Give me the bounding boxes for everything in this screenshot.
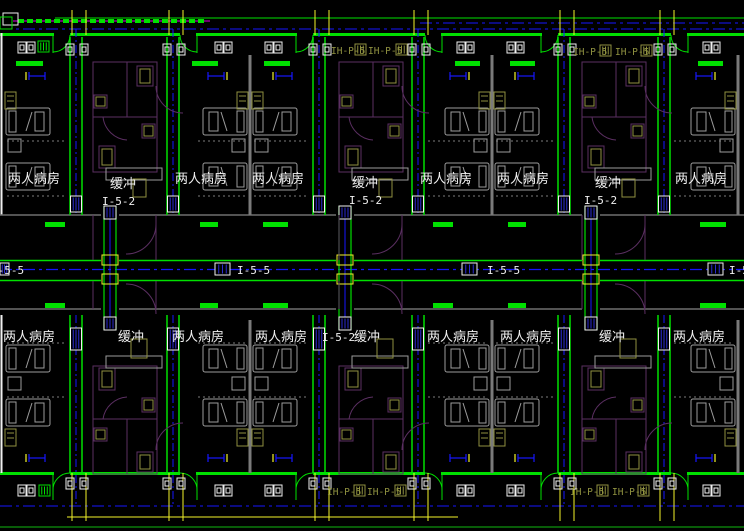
bed-blanket xyxy=(282,112,291,131)
ward-rooms xyxy=(5,72,736,462)
hatched-bar-seg xyxy=(72,19,78,23)
hatched-bar-seg xyxy=(108,19,114,23)
door-frame-inner xyxy=(165,481,169,486)
door-frame-box xyxy=(27,42,35,53)
door-frame-box xyxy=(457,42,465,53)
bed-fold xyxy=(709,349,715,368)
door-frame-inner xyxy=(217,488,221,493)
door-frame-inner xyxy=(509,45,513,50)
door-frame-inner xyxy=(459,45,463,50)
cistern xyxy=(140,69,150,83)
nightstand xyxy=(232,377,245,390)
room-label: I-5-2 xyxy=(584,194,617,207)
sink xyxy=(633,400,642,410)
bed-blanket xyxy=(697,403,706,422)
door-frame-inner xyxy=(518,488,522,493)
hatched-bar-seg xyxy=(27,19,33,23)
door-frame-inner xyxy=(714,488,718,493)
bed-fold xyxy=(26,403,32,422)
door-frame-box xyxy=(712,485,720,496)
room-label: I-5-2 xyxy=(349,194,382,207)
door-frame-inner xyxy=(509,488,513,493)
nightstand xyxy=(720,139,733,152)
door-frame-box xyxy=(18,42,26,53)
door-arc xyxy=(541,473,558,491)
duct-label: IH-P-5 xyxy=(331,46,365,57)
nightstand xyxy=(474,377,487,390)
axis-label: 缓冲 xyxy=(599,330,625,345)
door-frame-inner xyxy=(468,488,472,493)
door-frame-inner xyxy=(267,488,271,493)
bathroom-outline xyxy=(339,366,403,474)
bed-blanket xyxy=(451,112,460,131)
nightstand xyxy=(474,139,487,152)
door-frame-box xyxy=(554,478,562,489)
hatched-bar-seg xyxy=(45,19,51,23)
door-arc xyxy=(349,117,373,140)
door-frame-inner xyxy=(570,481,574,486)
door-lintel xyxy=(433,222,453,227)
axis-label: 缓冲 xyxy=(354,330,380,345)
bed-fold xyxy=(221,349,227,368)
toilet xyxy=(102,371,112,387)
room-label: I-5-5 xyxy=(0,264,24,277)
door-frame-box xyxy=(516,485,524,496)
door-lintel xyxy=(263,303,288,308)
room-label: 两人病房 xyxy=(255,329,307,345)
sink xyxy=(390,400,399,410)
room-label: 两人病房 xyxy=(427,329,479,345)
door-arc xyxy=(103,397,127,419)
bed-fold xyxy=(515,349,521,368)
door-arc xyxy=(372,224,402,254)
sink xyxy=(96,430,105,439)
desk-chair xyxy=(622,179,635,197)
door-frame-inner xyxy=(311,481,315,486)
door-frame-box xyxy=(516,42,524,53)
hatched-bar-seg xyxy=(117,19,123,23)
door-frame-box xyxy=(215,42,223,53)
duct-label: IH-P-5 xyxy=(615,47,649,58)
door-frame-inner xyxy=(267,45,271,50)
bed-fold xyxy=(515,403,521,422)
door-lintel xyxy=(200,303,218,308)
door-frame-inner xyxy=(424,481,428,486)
door-frame-box xyxy=(507,485,515,496)
axis-label: 缓冲 xyxy=(118,330,144,345)
door-frame-box xyxy=(466,485,474,496)
sink xyxy=(144,400,153,410)
toilet xyxy=(591,149,601,165)
hatched-bar-seg xyxy=(99,19,105,23)
hatched-bar-seg xyxy=(63,19,69,23)
door-lintel xyxy=(45,222,65,227)
door-frame-inner xyxy=(410,481,414,486)
hatched-bar-seg xyxy=(189,19,195,23)
axis-label: 缓冲 xyxy=(595,176,621,191)
floor-plan-drawing: 两人病房两人病房两人病房两人病房两人病房两人病房缓冲缓冲缓冲I-5-2I-5-2… xyxy=(0,0,744,531)
room-label: I-5-2 xyxy=(322,331,355,344)
bed-blanket xyxy=(282,403,291,422)
bed-fold xyxy=(273,403,279,422)
axis-label: 缓冲 xyxy=(352,176,378,191)
door-frame-box xyxy=(466,42,474,53)
door-frame-inner xyxy=(325,481,329,486)
bed-fold xyxy=(221,112,227,131)
bed-pillow xyxy=(479,166,486,187)
door-frame-box xyxy=(712,42,720,53)
room-label: 两人病房 xyxy=(420,171,472,187)
duct-label: IH-P-5 xyxy=(367,487,401,498)
door-frame-box xyxy=(80,44,88,55)
corridor xyxy=(0,261,744,281)
door-arc xyxy=(592,117,616,140)
bed-blanket xyxy=(524,349,533,368)
bed-pillow xyxy=(9,111,16,132)
hatched-bar-seg xyxy=(171,19,177,23)
bed-fold xyxy=(515,112,521,131)
bed-blanket xyxy=(35,349,44,368)
bed-blanket xyxy=(697,112,706,131)
bed-pillow xyxy=(479,111,486,132)
room-label: I-5-5 xyxy=(487,264,520,277)
door-arc xyxy=(53,473,70,491)
bed-pillow xyxy=(498,402,505,423)
nightstand xyxy=(8,139,21,152)
door-frame-box xyxy=(224,42,232,53)
axis-label: 缓冲 xyxy=(110,177,136,192)
door-frame-inner xyxy=(714,45,718,50)
outer-strip-bottom xyxy=(0,506,744,527)
toilet xyxy=(348,149,358,165)
sink xyxy=(342,97,351,106)
bed-fold xyxy=(463,349,469,368)
cistern xyxy=(386,69,396,83)
hatched-bar-seg xyxy=(90,19,96,23)
door-frame-inner xyxy=(468,45,472,50)
toilet xyxy=(102,149,112,165)
sink xyxy=(342,430,351,439)
bed-fold xyxy=(709,112,715,131)
hatched-bar-seg xyxy=(153,19,159,23)
bed-pillow xyxy=(498,111,505,132)
door-frame-box xyxy=(215,485,223,496)
nightstand xyxy=(255,377,268,390)
duct-label: IH-P-5 xyxy=(570,487,604,498)
door-frame-inner xyxy=(518,45,522,50)
door-frame-inner xyxy=(556,481,560,486)
door-frame-box xyxy=(323,44,331,55)
bed-pillow xyxy=(256,348,263,369)
door-frame-inner xyxy=(276,45,280,50)
bed-pillow xyxy=(256,111,263,132)
bed-pillow xyxy=(9,402,16,423)
door-frame-box xyxy=(654,478,662,489)
window-sill xyxy=(264,61,290,66)
bathroom-outline xyxy=(93,366,157,474)
hatched-bar-seg xyxy=(18,19,24,23)
door-lintel xyxy=(508,222,526,227)
door-frame-box xyxy=(703,485,711,496)
bed-fold xyxy=(463,403,469,422)
nightstand xyxy=(497,139,510,152)
room-label: 两人病房 xyxy=(252,171,304,187)
door-frame-inner xyxy=(20,45,24,50)
window-sill xyxy=(455,61,480,66)
bed-fold xyxy=(221,403,227,422)
bed-pillow xyxy=(498,348,505,369)
room-label: I-5-5 xyxy=(729,264,744,277)
bed-pillow xyxy=(256,402,263,423)
sink xyxy=(585,97,594,106)
window-sill xyxy=(16,61,43,66)
door-arc xyxy=(296,473,313,491)
center-walls xyxy=(18,41,738,496)
door-frame-inner xyxy=(68,481,72,486)
corner-box-white xyxy=(3,13,18,25)
hatched-bar-seg xyxy=(54,19,60,23)
door-frame-inner xyxy=(179,481,183,486)
bed-pillow xyxy=(9,348,16,369)
bed-pillow xyxy=(237,348,244,369)
door-frame-box xyxy=(274,42,282,53)
door-frame-box xyxy=(66,478,74,489)
toilet xyxy=(591,371,601,387)
cistern xyxy=(140,455,150,469)
door-frame-inner xyxy=(705,488,709,493)
room-label: 两人病房 xyxy=(175,171,227,187)
room-label: 两人病房 xyxy=(497,171,549,187)
bed-blanket xyxy=(209,403,218,422)
bed-blanket xyxy=(697,349,706,368)
door-frame-inner xyxy=(705,45,709,50)
bed-fold xyxy=(273,112,279,131)
door-frame-box xyxy=(408,478,416,489)
bed-blanket xyxy=(451,349,460,368)
door-arc xyxy=(126,224,156,254)
door-frame-box xyxy=(265,42,273,53)
nightstand xyxy=(255,139,268,152)
door-frame-box xyxy=(18,485,26,496)
door-lintel xyxy=(508,303,526,308)
cad-canvas: 两人病房两人病房两人病房两人病房两人病房两人病房缓冲缓冲缓冲I-5-2I-5-2… xyxy=(0,0,744,531)
bed-pillow xyxy=(237,111,244,132)
cistern xyxy=(386,455,396,469)
door-frame-box xyxy=(274,485,282,496)
hatched-bar-seg xyxy=(135,19,141,23)
door-frame-box xyxy=(163,478,171,489)
door-frame-inner xyxy=(226,45,230,50)
door-lintel xyxy=(700,303,726,308)
window-sill xyxy=(192,61,218,66)
sink xyxy=(390,126,399,136)
door-frame-box xyxy=(668,478,676,489)
sink xyxy=(144,126,153,136)
room-label: I-5-2 xyxy=(102,195,135,208)
door-frame-inner xyxy=(217,45,221,50)
room-label: 两人病房 xyxy=(8,171,60,187)
sink xyxy=(96,97,105,106)
hatched-bar-seg xyxy=(198,19,204,23)
bed-pillow xyxy=(479,402,486,423)
door-arc xyxy=(402,423,429,450)
window-sill xyxy=(698,61,723,66)
hatched-bar-seg xyxy=(162,19,168,23)
cistern xyxy=(629,455,639,469)
room-label: 两人病房 xyxy=(500,329,552,345)
door-arc xyxy=(103,117,127,140)
door-frame-box xyxy=(457,485,465,496)
bed-pillow xyxy=(725,111,732,132)
bed-blanket xyxy=(35,112,44,131)
cistern xyxy=(629,69,639,83)
bed-pillow xyxy=(237,166,244,187)
door-frame-inner xyxy=(656,481,660,486)
bed-fold xyxy=(273,349,279,368)
bed-blanket xyxy=(209,112,218,131)
bed-fold xyxy=(26,112,32,131)
door-frame-inner xyxy=(29,45,33,50)
bed-blanket xyxy=(282,349,291,368)
nightstand xyxy=(8,377,21,390)
door-frame-box xyxy=(507,42,515,53)
door-frame-box xyxy=(703,42,711,53)
sink xyxy=(585,430,594,439)
bed-blanket xyxy=(209,349,218,368)
bed-blanket xyxy=(524,403,533,422)
bathroom-outline xyxy=(582,366,646,474)
nightstand xyxy=(720,377,733,390)
bed-pillow xyxy=(479,348,486,369)
door-arc xyxy=(402,86,429,113)
duct-label: IH-P-5 xyxy=(573,47,607,58)
bed-blanket xyxy=(524,112,533,131)
bed-pillow xyxy=(725,348,732,369)
door-lintel xyxy=(700,222,726,227)
bed-blanket xyxy=(35,403,44,422)
bed-fold xyxy=(709,403,715,422)
door-lintel xyxy=(200,222,218,227)
room-label: 两人病房 xyxy=(3,329,55,345)
bed-pillow xyxy=(237,402,244,423)
hatched-bar-seg xyxy=(144,19,150,23)
door-frame-inner xyxy=(276,488,280,493)
door-arc xyxy=(592,397,616,419)
door-arc xyxy=(615,224,645,254)
door-frame-box xyxy=(80,478,88,489)
door-lintel xyxy=(45,303,65,308)
door-frame-inner xyxy=(459,488,463,493)
bed-fold xyxy=(26,349,32,368)
door-frame-box xyxy=(27,485,35,496)
nightstand xyxy=(497,377,510,390)
outer-strip-top xyxy=(0,13,744,29)
door-frame-box xyxy=(224,485,232,496)
hatched-bar-seg xyxy=(36,19,42,23)
bed-blanket xyxy=(451,403,460,422)
duct-label: IH-P-5 xyxy=(612,487,646,498)
bed-fold xyxy=(463,112,469,131)
door-frame-inner xyxy=(226,488,230,493)
room-label: 两人病房 xyxy=(172,329,224,345)
window-sill xyxy=(510,61,535,66)
door-frame-box xyxy=(309,478,317,489)
outer-walls xyxy=(0,33,744,500)
hatched-bar-seg xyxy=(126,19,132,23)
door-frame-inner xyxy=(29,488,33,493)
vestibule-walls xyxy=(0,215,744,309)
door-frame-box xyxy=(177,478,185,489)
door-lintel xyxy=(263,222,288,227)
door-frame-inner xyxy=(670,481,674,486)
door-frame-inner xyxy=(82,481,86,486)
room-label: 两人病房 xyxy=(675,171,727,187)
duct-label: IH-P-5 xyxy=(368,46,402,57)
plan-labels: 两人病房两人病房两人病房两人病房两人病房两人病房缓冲缓冲缓冲I-5-2I-5-2… xyxy=(0,46,744,498)
room-label: I-5-5 xyxy=(237,264,270,277)
door-lintel xyxy=(433,303,453,308)
door-arc xyxy=(349,397,373,419)
toilet xyxy=(348,371,358,387)
sink xyxy=(633,126,642,136)
duct-label: IH-P-5 xyxy=(327,487,361,498)
door-frame-inner xyxy=(20,488,24,493)
room-label: 两人病房 xyxy=(673,329,725,345)
door-frame-box xyxy=(265,485,273,496)
door-frame-box xyxy=(422,478,430,489)
corner-box-green xyxy=(0,17,12,29)
bed-pillow xyxy=(725,402,732,423)
